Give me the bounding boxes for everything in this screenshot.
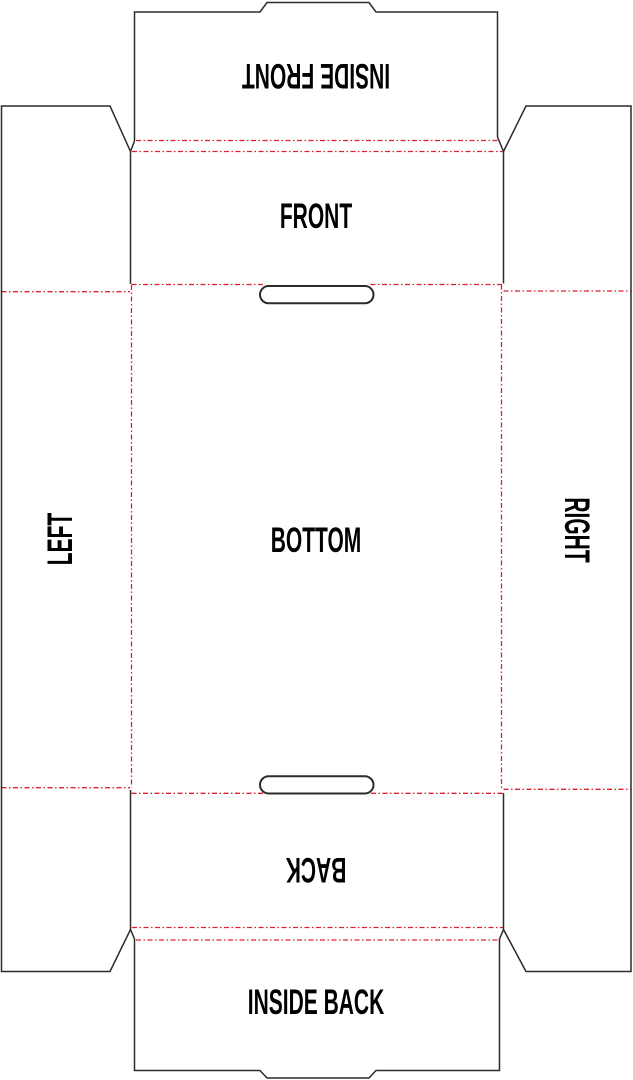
label-left: LEFT [42,512,81,565]
label-right: RIGHT [557,497,596,563]
panel-labels: INSIDE FRONT FRONT LEFT BOTTOM RIGHT BAC… [42,56,596,1023]
label-inside-back: INSIDE BACK [248,984,385,1023]
label-bottom: BOTTOM [271,522,362,561]
label-inside-front: INSIDE FRONT [242,56,390,95]
handle-slot-top [260,286,374,303]
label-back: BACK [286,850,347,889]
box-dieline-canvas: INSIDE FRONT FRONT LEFT BOTTOM RIGHT BAC… [0,0,633,1080]
handle-slot-bottom [260,776,374,793]
label-front: FRONT [280,198,353,237]
dieline-page: INSIDE FRONT FRONT LEFT BOTTOM RIGHT BAC… [0,0,633,1080]
